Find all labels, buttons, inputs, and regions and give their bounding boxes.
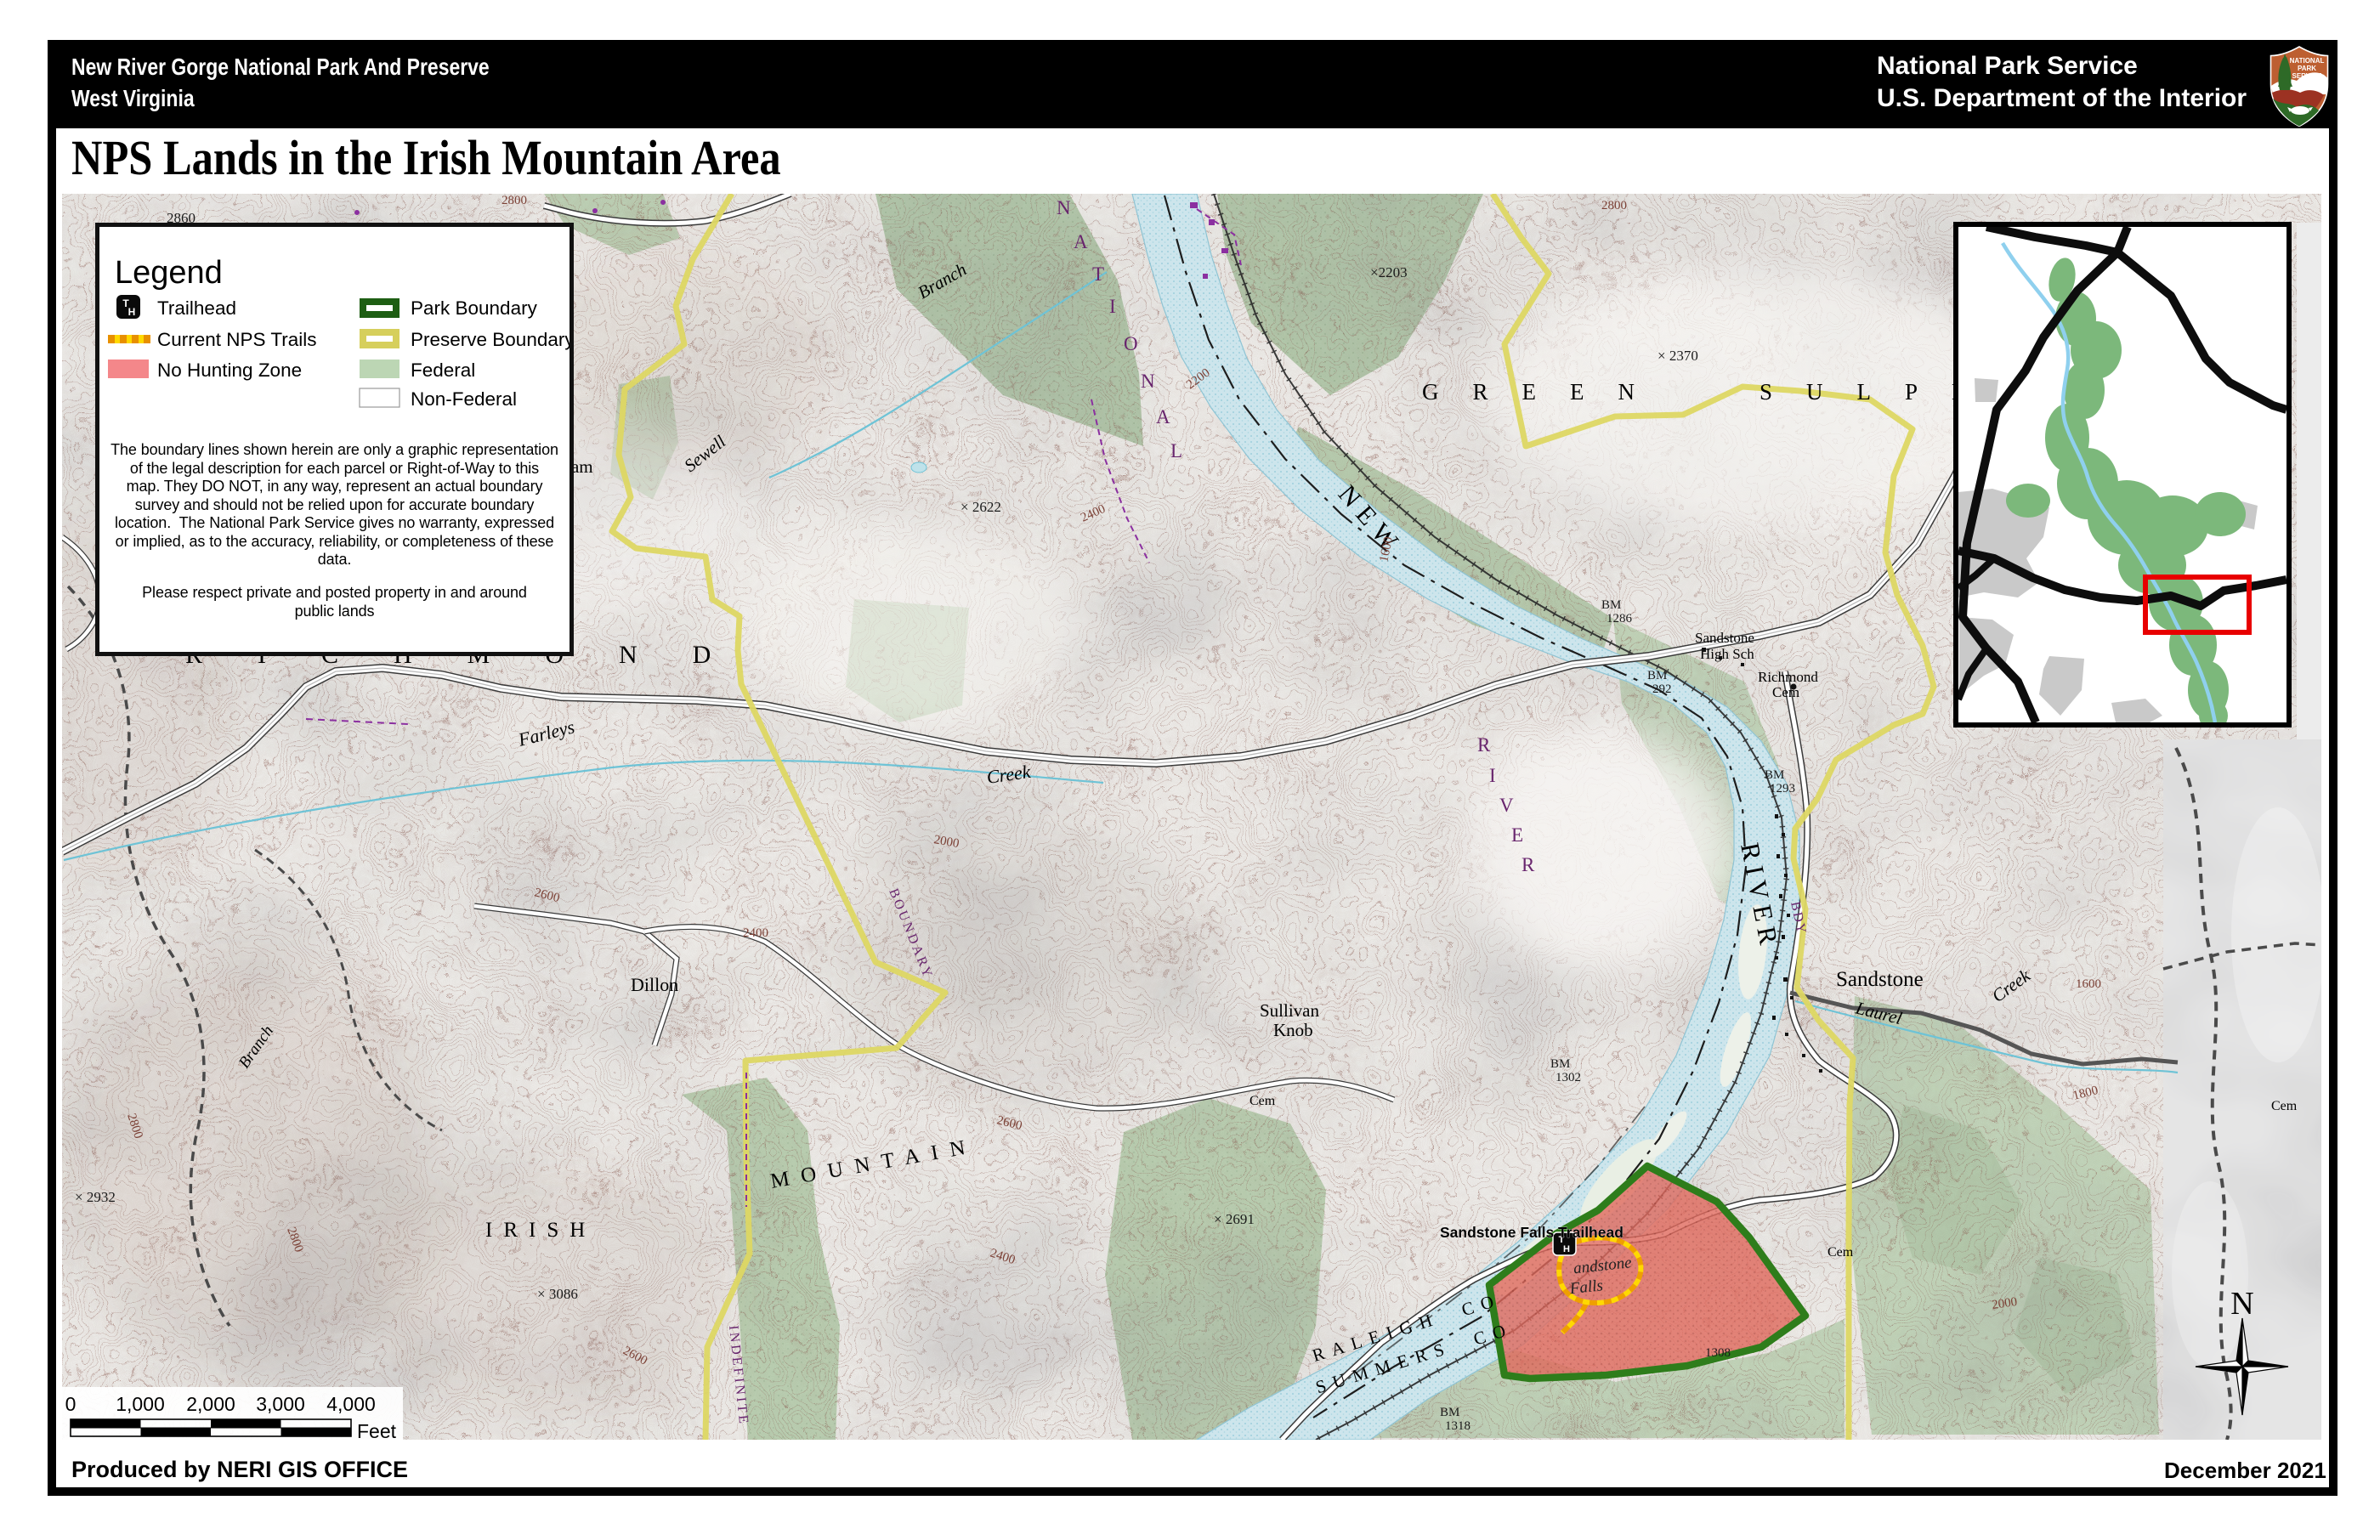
svg-text:BM: BM	[1440, 1406, 1459, 1419]
svg-text:1600: 1600	[2076, 977, 2101, 991]
svg-text:Feet: Feet	[357, 1420, 397, 1440]
svg-text:1318: 1318	[1445, 1419, 1470, 1433]
svg-text:N: N	[1057, 197, 1071, 218]
svg-text:Sandstone: Sandstone	[1695, 630, 1754, 646]
svg-text:2,000: 2,000	[186, 1393, 235, 1415]
svg-text:Knob: Knob	[1273, 1020, 1313, 1040]
svg-text:I: I	[1489, 765, 1496, 786]
svg-text:2400: 2400	[743, 926, 768, 940]
svg-text:Richmond: Richmond	[1758, 669, 1818, 685]
svg-text:N: N	[1141, 371, 1155, 392]
svg-text:No Hunting Zone: No Hunting Zone	[157, 360, 302, 381]
svg-text:Falls: Falls	[1568, 1277, 1604, 1298]
svg-text:0: 0	[65, 1393, 76, 1415]
svg-text:1302: 1302	[1555, 1071, 1581, 1084]
svg-text:Legend: Legend	[115, 255, 223, 291]
svg-text:Federal: Federal	[411, 360, 475, 381]
svg-text:× 2691: × 2691	[1214, 1211, 1255, 1227]
svg-text:4,000: 4,000	[326, 1393, 376, 1415]
svg-text:× 2370: × 2370	[1657, 348, 1698, 364]
svg-text:Cem: Cem	[1827, 1245, 1854, 1260]
svg-text:H: H	[128, 306, 136, 318]
svg-text:E: E	[1511, 824, 1523, 846]
svg-text:L: L	[1170, 440, 1182, 461]
svg-text:× 2622: × 2622	[960, 499, 1001, 515]
svg-text:1308: 1308	[1705, 1346, 1731, 1360]
svg-text:Sullivan: Sullivan	[1260, 1000, 1320, 1021]
svg-text:Dillon: Dillon	[631, 974, 678, 995]
svg-text:1,000: 1,000	[116, 1393, 165, 1415]
svg-text:BM: BM	[1550, 1057, 1570, 1071]
svg-text:Park Boundary: Park Boundary	[411, 297, 538, 319]
svg-text:A: A	[1156, 406, 1170, 427]
svg-text:BM: BM	[1601, 598, 1621, 612]
svg-text:GREEN: GREEN	[1422, 379, 1669, 405]
svg-text:Sandstone Falls Trailhead: Sandstone Falls Trailhead	[1440, 1224, 1623, 1241]
svg-text:Trailhead: Trailhead	[157, 297, 236, 319]
svg-text:Cem: Cem	[2271, 1099, 2298, 1113]
svg-text:IRISH: IRISH	[485, 1219, 596, 1242]
svg-text:×2203: ×2203	[1370, 264, 1408, 280]
svg-text:High Sch: High Sch	[1700, 646, 1754, 662]
svg-text:A: A	[1074, 231, 1088, 252]
svg-text:R: R	[1521, 854, 1535, 875]
svg-text:2800: 2800	[1601, 199, 1627, 212]
svg-text:R: R	[1477, 734, 1491, 756]
svg-text:× 2932: × 2932	[75, 1189, 116, 1205]
svg-text:Current NPS Trails: Current NPS Trails	[157, 329, 317, 350]
svg-text:N: N	[2230, 1286, 2253, 1322]
svg-text:Cem: Cem	[1249, 1094, 1276, 1108]
svg-text:Sandstone: Sandstone	[1836, 968, 1924, 991]
svg-text:2800: 2800	[501, 194, 527, 207]
svg-text:I: I	[1109, 296, 1116, 317]
svg-text:BM: BM	[1647, 669, 1667, 682]
svg-text:O: O	[1124, 333, 1138, 354]
svg-text:3,000: 3,000	[256, 1393, 305, 1415]
svg-text:BM: BM	[1765, 768, 1784, 782]
svg-text:T: T	[1092, 263, 1104, 285]
svg-text:Preserve Boundary: Preserve Boundary	[411, 329, 569, 350]
svg-text:V: V	[1499, 795, 1514, 816]
svg-text:PARK: PARK	[2298, 65, 2316, 72]
svg-text:NATIONAL: NATIONAL	[2290, 57, 2325, 65]
svg-text:Non-Federal: Non-Federal	[411, 388, 517, 410]
svg-text:H: H	[1563, 1244, 1570, 1254]
svg-text:292: 292	[1652, 682, 1672, 696]
svg-text:SERVICE: SERVICE	[2292, 72, 2323, 80]
svg-text:× 3086: × 3086	[537, 1286, 578, 1302]
svg-text:1286: 1286	[1606, 612, 1633, 626]
svg-text:1293: 1293	[1770, 782, 1795, 795]
